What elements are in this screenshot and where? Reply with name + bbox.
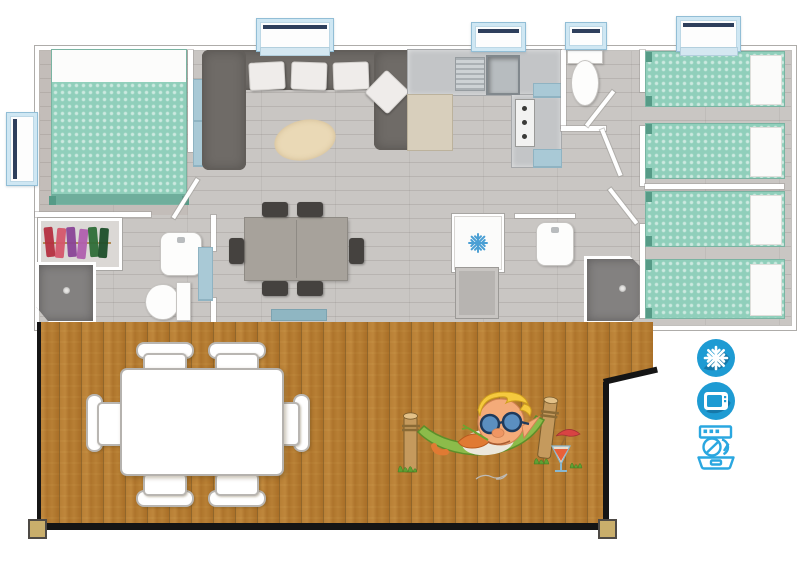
- window: [471, 22, 526, 52]
- mobile-home-building: [35, 46, 796, 330]
- washbasin: [160, 232, 202, 276]
- wall: [211, 298, 216, 322]
- door-leaf: [608, 188, 638, 225]
- air-conditioning-badge: [696, 338, 736, 378]
- clothes: [76, 229, 88, 260]
- double-bed: [52, 50, 186, 204]
- sink-drainer: [455, 57, 485, 91]
- shower-drain: [63, 287, 70, 294]
- wall: [515, 214, 575, 218]
- single-bed: [646, 192, 784, 246]
- bed-pillow: [750, 55, 782, 105]
- bed-foot: [646, 96, 652, 106]
- wall: [640, 224, 645, 318]
- bed-pillow: [750, 127, 782, 177]
- clothes: [55, 228, 67, 259]
- wall: [640, 50, 645, 92]
- deck-post: [28, 519, 47, 539]
- double-bed-blanket: [52, 82, 186, 194]
- bed-foot: [646, 260, 652, 270]
- double-bed-footer: [52, 194, 186, 204]
- clothes: [66, 227, 77, 258]
- deck-edge-right: [603, 382, 609, 528]
- shower-drain: [619, 285, 626, 292]
- dining-chair: [349, 238, 364, 264]
- bed-foot: [646, 308, 652, 318]
- bed-foot: [646, 192, 652, 202]
- entry-mat: [272, 310, 326, 320]
- rug: [271, 114, 340, 166]
- cooktop-knob: [522, 134, 527, 139]
- door-leaf: [600, 129, 622, 177]
- shower: [584, 256, 646, 324]
- tv-icon: [704, 392, 728, 410]
- bed-foot: [646, 52, 652, 62]
- cooktop-knob: [522, 120, 527, 125]
- window-sill: [260, 47, 330, 56]
- dining-table: [245, 218, 347, 280]
- deck-edge-left: [37, 322, 41, 527]
- kitchen-sink: [486, 55, 520, 95]
- outdoor-table: [120, 368, 284, 476]
- window: [6, 112, 38, 186]
- bed-foot: [646, 236, 652, 246]
- wall: [645, 184, 784, 189]
- kitchen-blue-accent: [534, 84, 561, 97]
- deck-edge-bottom: [37, 523, 610, 530]
- mascot-illustration: [388, 376, 588, 486]
- kitchen-blue-accent: [534, 150, 561, 167]
- outdoor-chair: [143, 473, 187, 496]
- grass-tuft: [398, 459, 582, 473]
- bed-foot: [49, 196, 56, 205]
- kitchen-bar-counter: [408, 95, 452, 150]
- dining-chair: [262, 281, 288, 296]
- single-bed: [646, 260, 784, 318]
- shower: [36, 262, 96, 324]
- dining-chair: [262, 202, 288, 217]
- sofa-left-arm: [202, 50, 246, 170]
- bed-pillow: [750, 264, 782, 316]
- table-seam: [296, 220, 297, 278]
- snowflake-icon: [705, 347, 727, 369]
- toilet-bowl: [571, 60, 599, 106]
- wall: [188, 50, 193, 152]
- amenity-badges: [696, 338, 740, 478]
- dining-chair: [297, 281, 323, 296]
- television-badge: [696, 381, 736, 421]
- window-sill: [680, 47, 738, 56]
- single-bed: [646, 124, 784, 178]
- cooktop: [515, 99, 535, 147]
- faucet: [177, 237, 185, 243]
- sofa-cushion: [291, 61, 328, 90]
- washbasin: [536, 222, 574, 266]
- window: [565, 22, 607, 50]
- bathroom-door-panel: [199, 248, 212, 300]
- faucet: [551, 227, 559, 233]
- clothes: [43, 227, 55, 258]
- floorplan-image: [0, 0, 800, 565]
- wall: [561, 50, 566, 128]
- outdoor-chair: [215, 473, 259, 496]
- fridge-snowflake-icon: [463, 228, 493, 258]
- fridge: [452, 214, 504, 272]
- artist-signature: [476, 474, 507, 479]
- dining-chair: [297, 202, 323, 217]
- bed-foot: [646, 124, 652, 134]
- wall: [211, 215, 216, 251]
- single-bed: [646, 52, 784, 106]
- clothes: [98, 228, 109, 259]
- wall: [640, 126, 645, 186]
- deck-post: [598, 519, 617, 539]
- sofa-cushion: [333, 61, 370, 90]
- toilet-bowl: [145, 284, 179, 320]
- toilet-tank: [176, 282, 191, 321]
- bed-pillow: [750, 195, 782, 245]
- dining-chair: [229, 238, 244, 264]
- hall-cabinet: [456, 268, 498, 318]
- wall: [35, 212, 151, 217]
- sofa-cushion: [248, 61, 285, 91]
- double-bed-sheet: [52, 50, 186, 84]
- bed-foot: [646, 168, 652, 178]
- cooktop-knob: [522, 106, 527, 111]
- dishwasher-icon: [697, 425, 735, 471]
